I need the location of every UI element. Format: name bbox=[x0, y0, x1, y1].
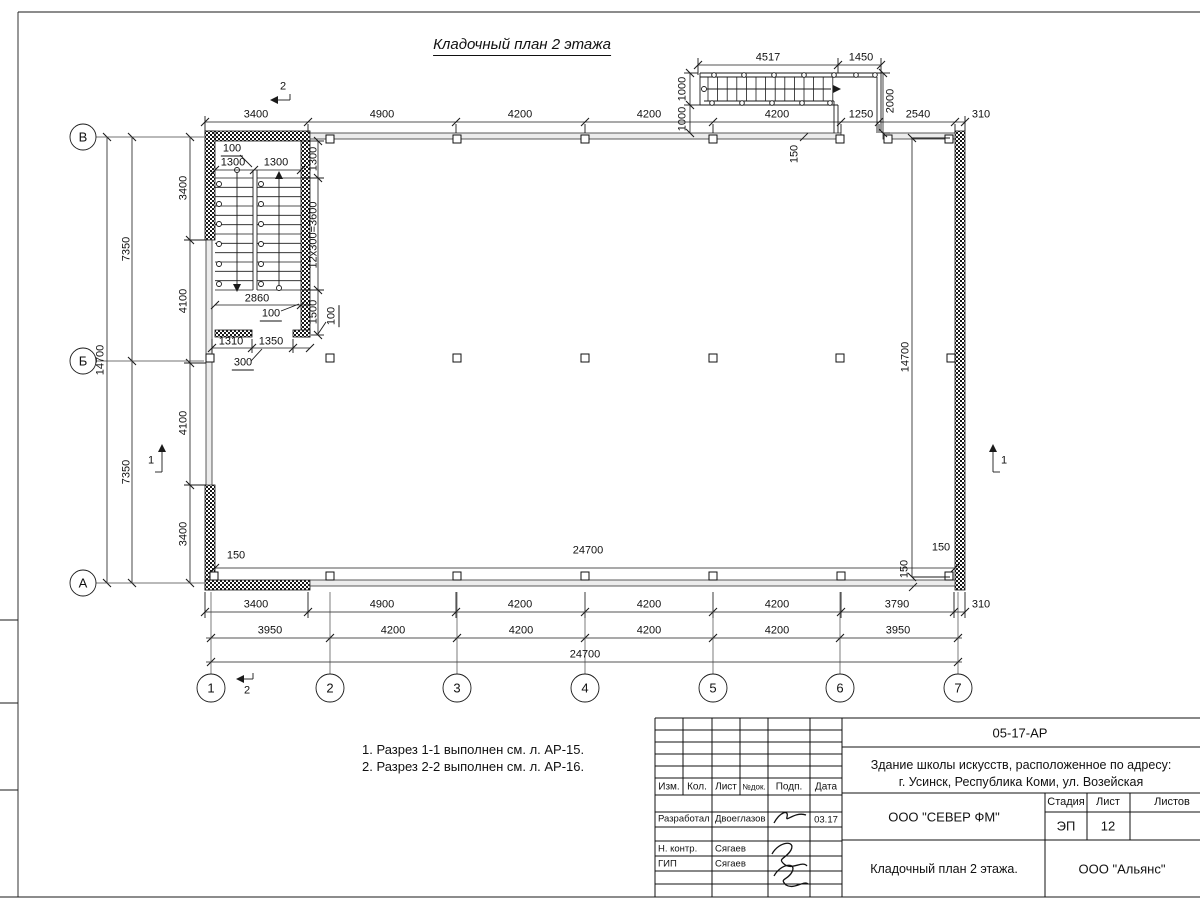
dim-label: 4200 bbox=[381, 626, 405, 637]
dim-label: 2 bbox=[244, 686, 250, 697]
axis-bubble-В: В bbox=[79, 130, 88, 145]
row-date-developed: 03.17 bbox=[814, 815, 838, 826]
axis-bubble-4: 4 bbox=[581, 681, 588, 696]
row-role-ncontrol: Н. контр. bbox=[658, 844, 697, 855]
dim-label: 1300 bbox=[264, 158, 288, 169]
dim-label: 4200 bbox=[637, 626, 661, 637]
drawing-title: Кладочный план 2 этажа. bbox=[870, 862, 1018, 876]
dim-label: 3400 bbox=[244, 600, 268, 611]
org-name: ООО "СЕВЕР ФМ" bbox=[888, 810, 1000, 825]
dim-label: 1450 bbox=[849, 53, 873, 64]
dim-label: 14700 bbox=[96, 345, 107, 376]
dim-label: 1000 bbox=[678, 107, 689, 131]
dim-label: 150 bbox=[227, 551, 245, 562]
dim-label: 4200 bbox=[509, 626, 533, 637]
dim-label: 7350 bbox=[122, 460, 133, 484]
col-data: Дата bbox=[815, 782, 837, 793]
dim-label: 2860 bbox=[245, 294, 269, 305]
dim-label: 1250 bbox=[849, 110, 873, 121]
row-name-gip: Сягаев bbox=[715, 859, 746, 870]
dim-label: 2000 bbox=[886, 89, 897, 113]
dim-label: 1310 bbox=[219, 337, 243, 348]
dim-label: 310 bbox=[972, 110, 990, 121]
dim-label: 3400 bbox=[179, 522, 190, 546]
dim-label: 24700 bbox=[573, 546, 604, 557]
axis-bubble-Б: Б bbox=[79, 354, 88, 369]
dim-label: 4200 bbox=[765, 600, 789, 611]
dim-label: 4200 bbox=[508, 600, 532, 611]
dim-label: 100 bbox=[260, 309, 282, 322]
dim-label: 1 bbox=[1001, 456, 1007, 467]
dim-label: 4200 bbox=[637, 110, 661, 121]
axis-bubble-2: 2 bbox=[326, 681, 333, 696]
note-line-2: 2. Разрез 2-2 выполнен см. л. АР-16. bbox=[362, 759, 584, 774]
axis-bubble-3: 3 bbox=[453, 681, 460, 696]
axis-bubble-6: 6 bbox=[836, 681, 843, 696]
sheet-number: 12 bbox=[1101, 819, 1115, 834]
stage-value: ЭП bbox=[1057, 819, 1076, 834]
dim-label: 150 bbox=[900, 560, 911, 578]
dim-label: 3790 bbox=[885, 600, 909, 611]
dim-label: 100 bbox=[327, 305, 340, 327]
dim-label: 4900 bbox=[370, 110, 394, 121]
signature bbox=[774, 865, 808, 886]
dim-label: 24700 bbox=[570, 650, 601, 661]
row-name-developed: Двоеглазов bbox=[715, 814, 766, 825]
axis-bubble-7: 7 bbox=[954, 681, 961, 696]
dim-label: 1000 bbox=[678, 77, 689, 101]
dim-label: 1300 bbox=[309, 147, 320, 171]
dim-label: 4517 bbox=[756, 53, 780, 64]
sheets-label: Листов bbox=[1154, 796, 1190, 808]
dim-label: 3400 bbox=[244, 110, 268, 121]
dim-label: 7350 bbox=[122, 237, 133, 261]
dim-label: 4100 bbox=[179, 289, 190, 313]
dim-label: 1 bbox=[148, 456, 154, 467]
col-kol: Кол. bbox=[687, 782, 707, 793]
dim-label: 4100 bbox=[179, 411, 190, 435]
project-name-line2: г. Усинск, Республика Коми, ул. Возейска… bbox=[899, 775, 1143, 789]
dim-label: 3950 bbox=[886, 626, 910, 637]
dim-label: 4200 bbox=[765, 110, 789, 121]
dim-label: 4200 bbox=[765, 626, 789, 637]
axis-bubble-1: 1 bbox=[207, 681, 214, 696]
axis-bubble-А: А bbox=[79, 576, 88, 591]
axis-bubble-5: 5 bbox=[709, 681, 716, 696]
signature bbox=[772, 843, 807, 866]
dim-label: 150 bbox=[932, 543, 950, 554]
project-name-line1: Здание школы искусств, расположенное по … bbox=[871, 758, 1172, 772]
sheet-label: Лист bbox=[1096, 796, 1120, 808]
dim-label: 14700 bbox=[901, 342, 912, 373]
dim-label: 4200 bbox=[508, 110, 532, 121]
dim-label: 4900 bbox=[370, 600, 394, 611]
org2-name: ООО "Альянс" bbox=[1079, 862, 1166, 877]
row-name-ncontrol: Сягаев bbox=[715, 844, 746, 855]
note-line-1: 1. Разрез 1-1 выполнен см. л. АР-15. bbox=[362, 742, 584, 757]
dim-label: 4200 bbox=[637, 600, 661, 611]
dim-label: 100 bbox=[221, 144, 243, 157]
dim-label: 1300 bbox=[221, 158, 245, 169]
dim-label: 2 bbox=[280, 82, 286, 93]
row-role-developed: Разработал bbox=[658, 814, 710, 825]
floor-plan-sheet: Кладочный план 2 этажа 1. Разрез 1-1 вып… bbox=[0, 0, 1200, 900]
dim-label: 3400 bbox=[179, 176, 190, 200]
col-izm: Изм. bbox=[658, 782, 679, 793]
dim-label: 150 bbox=[790, 145, 801, 163]
col-podp: Подп. bbox=[776, 782, 803, 793]
dim-label: 310 bbox=[972, 600, 990, 611]
dim-label: 300 bbox=[232, 358, 254, 371]
dim-label: 1350 bbox=[259, 337, 283, 348]
page-title: Кладочный план 2 этажа bbox=[433, 36, 611, 56]
stage-label: Стадия bbox=[1047, 796, 1085, 808]
doc-number: 05-17-АР bbox=[993, 726, 1048, 741]
col-list: Лист bbox=[715, 782, 737, 793]
dim-label: 2540 bbox=[906, 110, 930, 121]
col-ndoc: №док. bbox=[742, 783, 765, 792]
row-role-gip: ГИП bbox=[658, 859, 677, 870]
dim-label: 3950 bbox=[258, 626, 282, 637]
signature bbox=[774, 812, 806, 823]
dim-label: 12х300=3600 bbox=[309, 202, 320, 269]
dim-label: 1500 bbox=[309, 300, 320, 324]
